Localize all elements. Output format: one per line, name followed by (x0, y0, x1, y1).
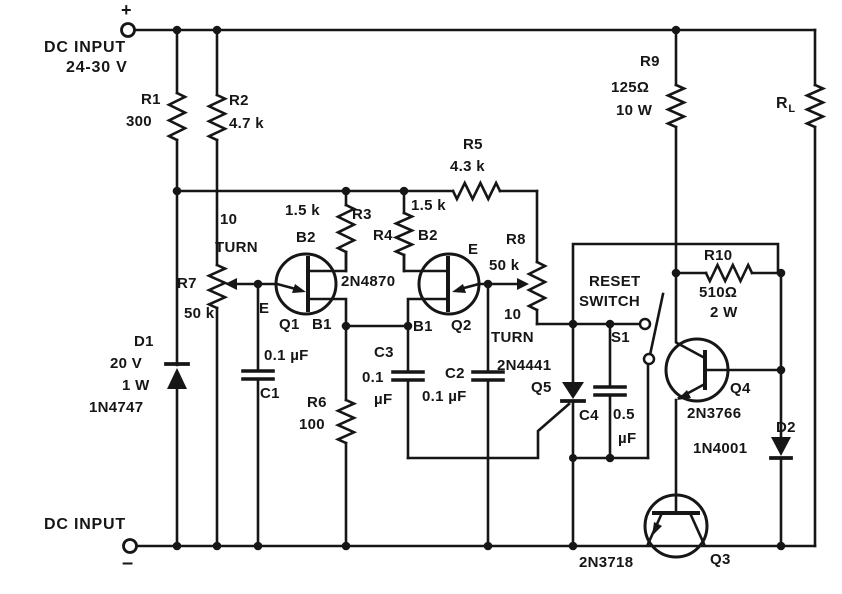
label-c2-val: 0.1 µF (422, 388, 467, 405)
ujt-q2 (404, 254, 479, 326)
label-r7-ref: R7 (177, 275, 197, 292)
label-r3-val: 1.5 k (285, 202, 320, 219)
scr-q5 (408, 324, 584, 546)
label-q3-ref: Q3 (710, 551, 731, 568)
label-d2-part: 1N4001 (693, 440, 747, 457)
resistor-r5 (453, 183, 500, 199)
capacitor-c3 (393, 326, 423, 458)
label-r7-turns: 10 (220, 211, 237, 228)
r8-wiper-arrow (517, 278, 529, 290)
q2-emitter-arrow (452, 284, 466, 293)
label-q2-e: E (468, 241, 478, 258)
label-r5-ref: R5 (463, 136, 483, 153)
label-r10-pow: 2 W (710, 304, 738, 321)
dc-input-range-label: 24-30 V (66, 59, 128, 77)
label-r1-val: 300 (126, 113, 152, 130)
label-r2-ref: R2 (229, 92, 249, 109)
label-s1-ref: S1 (611, 329, 630, 346)
resistor-r10 (676, 265, 781, 281)
plus-sign: + (121, 0, 132, 21)
label-q1-b1: B1 (312, 316, 332, 333)
label-c1-ref: C1 (260, 385, 280, 402)
label-r2-val: 4.7 k (229, 115, 264, 132)
label-r7-turnsword: TURN (215, 239, 258, 256)
label-c4-unit: µF (618, 430, 636, 447)
label-c4-val: 0.5 (613, 406, 635, 423)
label-r8-val: 50 k (489, 257, 519, 274)
label-d2-ref: D2 (776, 419, 796, 436)
label-q4-part: 2N3766 (687, 405, 741, 422)
switch-lever (650, 294, 663, 355)
label-q1-part: 2N4870 (341, 273, 395, 290)
transistor-q4 (666, 339, 781, 401)
label-c2-ref: C2 (445, 365, 465, 382)
q1-emitter-arrow (292, 284, 306, 293)
capacitor-c1 (243, 284, 273, 546)
label-r10-ref: R10 (704, 247, 732, 264)
label-d1-volt: 20 V (110, 355, 142, 372)
label-r8-turns: 10 (504, 306, 521, 323)
label-r8-ref: R8 (506, 231, 526, 248)
label-c3-val: 0.1 (362, 369, 384, 386)
resistor-r1 (169, 93, 185, 140)
label-r1-ref: R1 (141, 91, 161, 108)
label-r8-turnsword: TURN (491, 329, 534, 346)
zener-diode-d1 (166, 364, 188, 389)
label-r5-val: 4.3 k (450, 158, 485, 175)
label-r7-val: 50 k (184, 305, 214, 322)
label-q3-part: 2N3718 (579, 554, 633, 571)
resistor-r6 (338, 400, 354, 443)
resistor-r9 (668, 85, 684, 127)
label-d1-ref: D1 (134, 333, 154, 350)
dc-input-top-label: DC INPUT (44, 39, 126, 57)
switch-contact-top (640, 319, 650, 329)
label-c1-val: 0.1 µF (264, 347, 309, 364)
label-q1-b2: B2 (296, 229, 316, 246)
label-q2-b1: B1 (413, 318, 433, 335)
label-q1-e: E (259, 300, 269, 317)
label-r4-ref: R4 (373, 227, 393, 244)
label-r10-val: 510Ω (699, 284, 737, 301)
label-r9-pow: 10 W (616, 102, 652, 119)
label-rl-ref: RL (776, 95, 796, 115)
ujt-q1 (276, 252, 346, 326)
dc-input-negative-terminal (124, 540, 137, 553)
label-r9-ref: R9 (640, 53, 660, 70)
label-q5-ref: Q5 (531, 379, 552, 396)
label-c3-ref: C3 (374, 344, 394, 361)
label-r4-val: 1.5 k (411, 197, 446, 214)
label-d1-part: 1N4747 (89, 399, 143, 416)
label-r6-val: 100 (299, 416, 325, 433)
label-c4-ref: C4 (579, 407, 599, 424)
switch-contact-bottom (644, 354, 654, 364)
resistor-r4 (396, 213, 412, 255)
label-q2-ref: Q2 (451, 317, 472, 334)
r7-wiper-arrow (225, 278, 237, 290)
label-reset-line1: RESET (589, 273, 641, 290)
q3-emitter-arrow (652, 522, 662, 536)
label-r3-ref: R3 (352, 206, 372, 223)
dc-input-bottom-label: DC INPUT (44, 516, 126, 534)
minus-sign: – (122, 552, 133, 575)
diode-d2 (771, 273, 791, 546)
capacitor-c2 (473, 284, 503, 546)
label-d1-pow: 1 W (122, 377, 150, 394)
dc-input-positive-terminal (122, 24, 135, 37)
label-reset-line2: SWITCH (579, 293, 640, 310)
label-r9-val: 125Ω (611, 79, 649, 96)
resistor-rl (807, 85, 823, 127)
resistor-r2 (209, 95, 225, 140)
label-c3-unit: µF (374, 391, 392, 408)
label-q2-b2: B2 (418, 227, 438, 244)
label-q5-part: 2N4441 (497, 357, 551, 374)
label-r6-ref: R6 (307, 394, 327, 411)
circuit-schematic: + DC INPUT 24-30 V R1 300 R2 4.7 k R9 12… (0, 0, 842, 594)
label-q1-ref: Q1 (279, 316, 300, 333)
label-q4-ref: Q4 (730, 380, 751, 397)
